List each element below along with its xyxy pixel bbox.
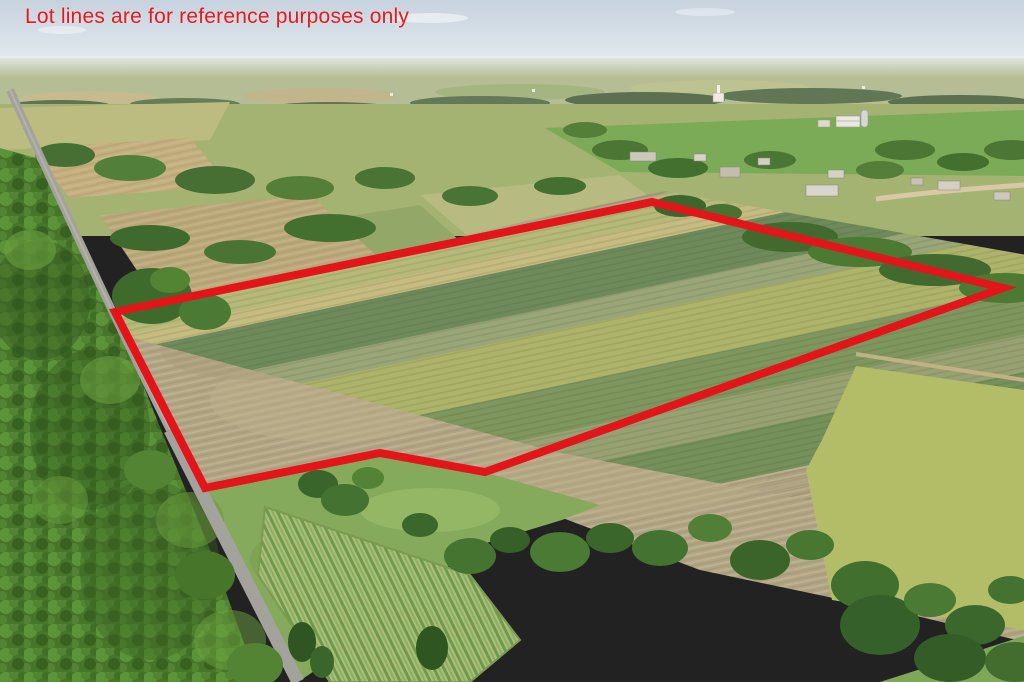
hedgerow-trees (355, 167, 415, 189)
pine-tree (416, 626, 448, 670)
house (758, 158, 770, 165)
house (938, 181, 960, 190)
meadow-tree (586, 523, 634, 553)
hedgerow-trees (284, 214, 376, 242)
meadow-tree (530, 532, 590, 572)
lot-disclaimer-text: Lot lines are for reference purposes onl… (25, 5, 409, 29)
church-steeple (717, 85, 720, 93)
pine-tree (310, 646, 334, 678)
hedgerow-trees (442, 186, 498, 206)
hedgerow-trees (175, 166, 255, 194)
house (694, 154, 706, 161)
meadow-tree (444, 538, 496, 574)
yard-trees (856, 161, 904, 179)
distant-building (862, 86, 865, 89)
hedgerow-trees (266, 176, 334, 200)
distant-trees (718, 88, 902, 104)
meadow-tree (352, 467, 384, 489)
house (806, 185, 838, 196)
church-building (713, 93, 724, 102)
yard-trees (937, 153, 989, 171)
scene-svg (0, 0, 1024, 682)
meadow-tree (914, 634, 986, 682)
overhang-tree (124, 450, 176, 490)
forest-highlight (4, 230, 56, 270)
meadow-tree (402, 513, 438, 537)
forest-highlight (32, 476, 88, 524)
house (828, 170, 844, 178)
hedgerow-trees (534, 177, 586, 195)
meadow-tree (730, 540, 790, 580)
silo (861, 110, 868, 127)
horizon-haze (0, 56, 1024, 78)
forest-highlight (80, 356, 140, 404)
hedgerow-trees (110, 225, 190, 251)
aerial-photo: Lot lines are for reference purposes onl… (0, 0, 1024, 682)
meadow-tree (688, 514, 732, 542)
distant-building (390, 93, 393, 96)
house (911, 178, 923, 185)
yard-trees (875, 140, 935, 160)
meadow-tree (786, 530, 834, 560)
meadow-tree (490, 527, 530, 553)
meadow-tree (904, 583, 956, 617)
house (994, 192, 1010, 200)
farm-shed (818, 120, 830, 127)
distant-field (245, 88, 395, 104)
distant-building (532, 89, 535, 92)
hedgerow-trees (204, 240, 276, 264)
meadow-tree (321, 484, 369, 516)
meadow-tree (632, 530, 688, 566)
yard-trees (563, 122, 607, 138)
hedgerow-trees (94, 155, 166, 181)
house (630, 152, 656, 161)
corner-tree-cluster (150, 267, 190, 293)
cloud (675, 8, 735, 16)
house (720, 167, 740, 177)
overhang-tree (175, 551, 235, 599)
